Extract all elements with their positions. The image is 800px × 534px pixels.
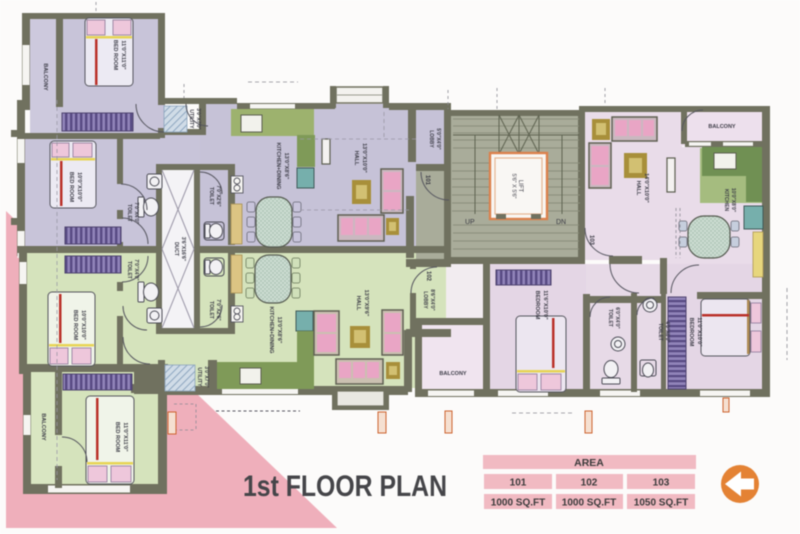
svg-text:103: 103	[653, 478, 670, 489]
svg-text:8'6"X4'0": 8'6"X4'0"	[429, 289, 435, 311]
svg-text:13'0"X8'6": 13'0"X8'6"	[276, 317, 282, 344]
svg-text:BED ROOM: BED ROOM	[112, 40, 118, 71]
svg-text:KITCHEN+DINING: KITCHEN+DINING	[268, 307, 274, 354]
svg-text:BEDROOM: BEDROOM	[688, 318, 694, 347]
svg-text:TOILET: TOILET	[208, 187, 214, 205]
svg-text:TOILET: TOILET	[208, 301, 214, 319]
svg-text:10'0"X10'0": 10'0"X10'0"	[76, 172, 82, 202]
svg-text:TOILET: TOILET	[607, 309, 613, 327]
svg-text:HALL: HALL	[353, 151, 359, 166]
svg-text:DN: DN	[556, 219, 566, 226]
svg-text:7'0"X4'0": 7'0"X4'0"	[133, 259, 139, 281]
svg-text:TOILET: TOILET	[126, 261, 132, 279]
svg-text:101: 101	[424, 175, 430, 186]
svg-text:TOILET: TOILET	[126, 204, 132, 222]
svg-text:10'0"X8'0": 10'0"X8'0"	[730, 188, 736, 213]
svg-text:13'0"X10'0": 13'0"X10'0"	[361, 143, 367, 173]
svg-text:103: 103	[588, 235, 594, 246]
svg-text:LIFT: LIFT	[517, 180, 523, 193]
svg-text:KITCHEN+DINING: KITCHEN+DINING	[275, 143, 281, 190]
svg-text:13'0"X8'6": 13'0"X8'6"	[283, 153, 289, 180]
svg-text:11'0"X11'0": 11'0"X11'0"	[120, 40, 126, 70]
svg-text:BED ROOM: BED ROOM	[114, 422, 120, 453]
svg-text:HALL: HALL	[355, 296, 361, 311]
svg-text:UTILITY: UTILITY	[196, 368, 202, 388]
svg-text:LOBBY: LOBBY	[422, 291, 428, 309]
svg-text:BALCONY: BALCONY	[708, 124, 736, 130]
svg-text:4'0"X6'0": 4'0"X6'0"	[664, 321, 670, 343]
svg-text:5'6" X 5'6": 5'6" X 5'6"	[511, 174, 517, 199]
svg-text:BEDROOM: BEDROOM	[534, 291, 540, 320]
svg-text:3'0"X7'0": 3'0"X7'0"	[203, 366, 209, 388]
svg-text:102: 102	[425, 271, 431, 282]
svg-text:11'0"X10'0": 11'0"X10'0"	[696, 317, 702, 347]
svg-text:1000 SQ.FT: 1000 SQ.FT	[491, 498, 545, 509]
svg-text:3'0"X7'0": 3'0"X7'0"	[195, 108, 201, 130]
svg-text:14'0"X10'0": 14'0"X10'0"	[643, 173, 649, 203]
svg-text:BALCONY: BALCONY	[40, 413, 46, 441]
svg-text:3'6"X16'6": 3'6"X16'6"	[180, 237, 186, 262]
svg-text:13'0"X9'6": 13'0"X9'6"	[363, 290, 369, 317]
svg-text:10'0"X10'0": 10'0"X10'0"	[80, 310, 86, 340]
svg-text:11'0"X11'0": 11'0"X11'0"	[122, 422, 128, 452]
svg-text:DUCT: DUCT	[173, 242, 179, 256]
svg-text:7'0"X2'6": 7'0"X2'6"	[215, 185, 221, 207]
svg-text:6'0"X4'0": 6'0"X4'0"	[614, 307, 620, 329]
svg-text:LOBBY: LOBBY	[428, 130, 434, 148]
svg-text:KITCHEN: KITCHEN	[723, 189, 729, 212]
svg-text:AREA: AREA	[574, 457, 604, 469]
svg-text:TOILET: TOILET	[657, 323, 663, 341]
svg-text:11'6"X10'0": 11'6"X10'0"	[542, 290, 548, 320]
svg-text:UTILITY: UTILITY	[188, 110, 194, 130]
svg-text:7'0"X4'0": 7'0"X4'0"	[133, 202, 139, 224]
svg-text:1050 SQ.FT: 1050 SQ.FT	[634, 498, 688, 509]
svg-text:5'0"X4'0": 5'0"X4'0"	[435, 128, 441, 150]
svg-text:1000 SQ.FT: 1000 SQ.FT	[562, 498, 616, 509]
svg-text:101: 101	[510, 478, 527, 489]
svg-text:BALCONY: BALCONY	[42, 63, 48, 91]
svg-text:HALL: HALL	[635, 181, 641, 196]
svg-text:102: 102	[581, 478, 598, 489]
svg-text:BED ROOM: BED ROOM	[68, 172, 74, 203]
svg-text:BALCONY: BALCONY	[439, 371, 467, 377]
svg-text:7'0"X2'6": 7'0"X2'6"	[215, 299, 221, 321]
svg-text:1st FLOOR PLAN: 1st FLOOR PLAN	[243, 470, 447, 503]
svg-text:BED ROOM: BED ROOM	[72, 310, 78, 341]
svg-text:UP: UP	[465, 219, 475, 226]
